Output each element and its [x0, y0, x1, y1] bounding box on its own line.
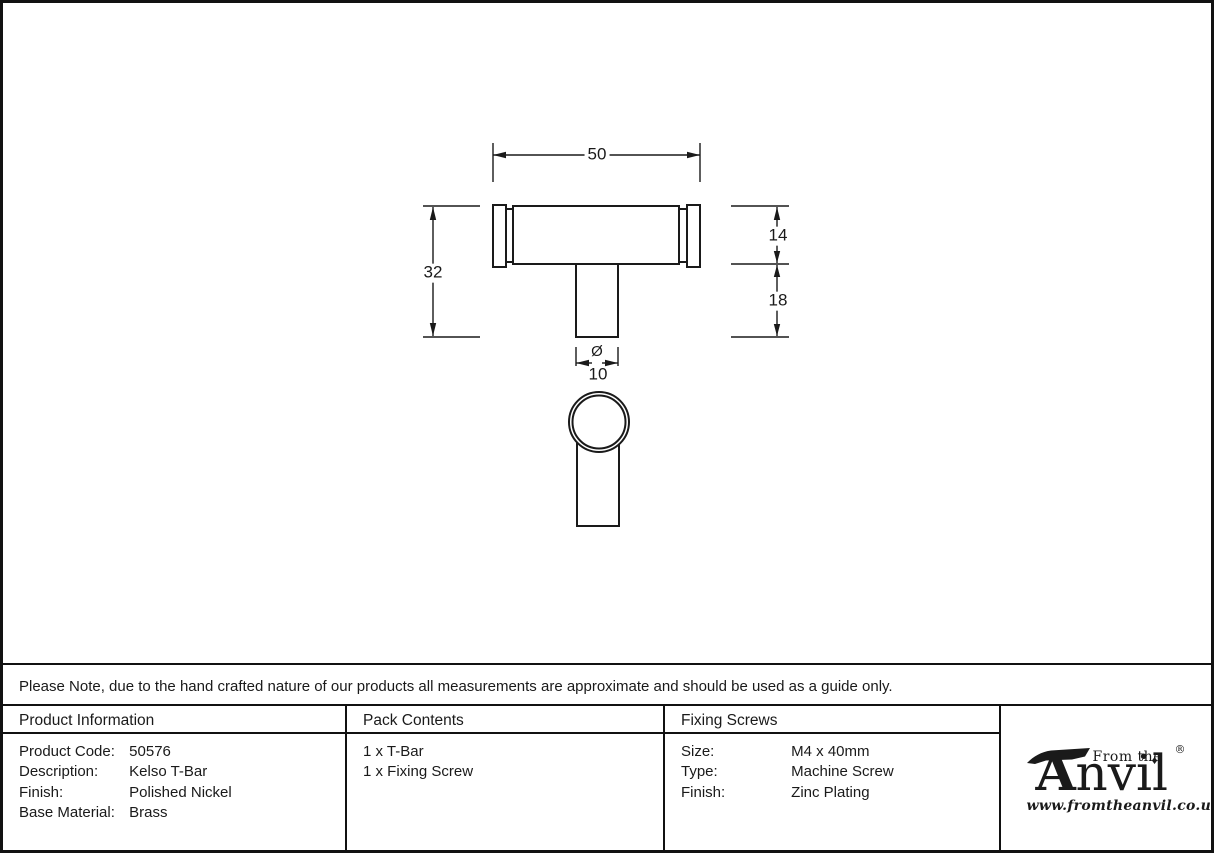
header-pack-contents: Pack Contents — [363, 707, 464, 734]
divider-col-3 — [999, 704, 1001, 850]
dim-width-label: 50 — [585, 146, 610, 165]
dim-stem-length-label: 18 — [766, 292, 791, 311]
table-row: Product Code: 50576 — [19, 742, 232, 762]
front-view — [493, 205, 700, 337]
dim-diameter-value: 10 — [586, 366, 611, 385]
brand-logo: A From the ♦ nvil ® www.fromtheanvil.co.… — [1027, 747, 1187, 813]
row-label: Finish: — [681, 783, 787, 803]
list-item: 1 x Fixing Screw — [363, 762, 473, 782]
logo-website: www.fromtheanvil.co.uk — [1027, 799, 1187, 813]
table-row: Size: M4 x 40mm — [681, 742, 894, 762]
row-label: Finish: — [19, 783, 125, 803]
bar-right-neck — [679, 209, 687, 262]
divider-col-1 — [345, 704, 347, 850]
row-value: Machine Screw — [791, 763, 894, 780]
table-row: Description: Kelso T-Bar — [19, 762, 232, 782]
registered-trademark-icon: ® — [1175, 744, 1186, 755]
row-label: Type: — [681, 762, 787, 782]
row-label: Base Material: — [19, 803, 125, 823]
divider-col-2 — [663, 704, 665, 850]
row-value: Polished Nickel — [129, 784, 232, 801]
dim-bar-thickness-label: 14 — [766, 227, 791, 246]
note-row: Please Note, due to the hand crafted nat… — [3, 667, 1211, 706]
logo-name-rest: nvil — [1076, 748, 1168, 798]
side-view — [569, 392, 629, 526]
row-label: Description: — [19, 762, 125, 782]
row-label: Size: — [681, 742, 787, 762]
table-row: Base Material: Brass — [19, 803, 232, 823]
fixing-screws-body: Size: M4 x 40mm Type: Machine Screw Fini… — [681, 742, 894, 803]
row-value: 50576 — [129, 743, 171, 760]
row-value: M4 x 40mm — [791, 743, 869, 760]
bar-right-cap — [687, 205, 700, 267]
header-fixing-screws: Fixing Screws — [681, 707, 777, 734]
list-item: 1 x T-Bar — [363, 742, 473, 762]
divider-drawing-note — [3, 663, 1211, 665]
row-value: Zinc Plating — [791, 784, 869, 801]
bar-left-neck — [506, 209, 513, 262]
row-value: Brass — [129, 804, 167, 821]
row-value: Kelso T-Bar — [129, 763, 207, 780]
pack-contents-body: 1 x T-Bar 1 x Fixing Screw — [363, 742, 473, 783]
table-row: Finish: Zinc Plating — [681, 783, 894, 803]
bar-body — [513, 206, 679, 264]
technical-drawing — [3, 3, 1211, 663]
brand-logo-cell: A From the ♦ nvil ® www.fromtheanvil.co.… — [1002, 708, 1211, 851]
table-row: Finish: Polished Nickel — [19, 783, 232, 803]
dim-height-label: 32 — [421, 264, 446, 283]
table-row: Type: Machine Screw — [681, 762, 894, 782]
product-information-body: Product Code: 50576 Description: Kelso T… — [19, 742, 232, 824]
bar-end-inner-circle — [573, 396, 626, 449]
stem-side — [577, 442, 619, 526]
note-text: Please Note, due to the hand crafted nat… — [19, 678, 893, 695]
row-label: Product Code: — [19, 742, 125, 762]
dim-diameter-symbol: Ø — [590, 344, 604, 361]
stem-front — [576, 264, 618, 337]
bar-left-cap — [493, 205, 506, 267]
spec-sheet-page: 50 32 14 18 Ø 10 Please Note, due to the… — [0, 0, 1214, 853]
header-product-information: Product Information — [19, 707, 154, 734]
